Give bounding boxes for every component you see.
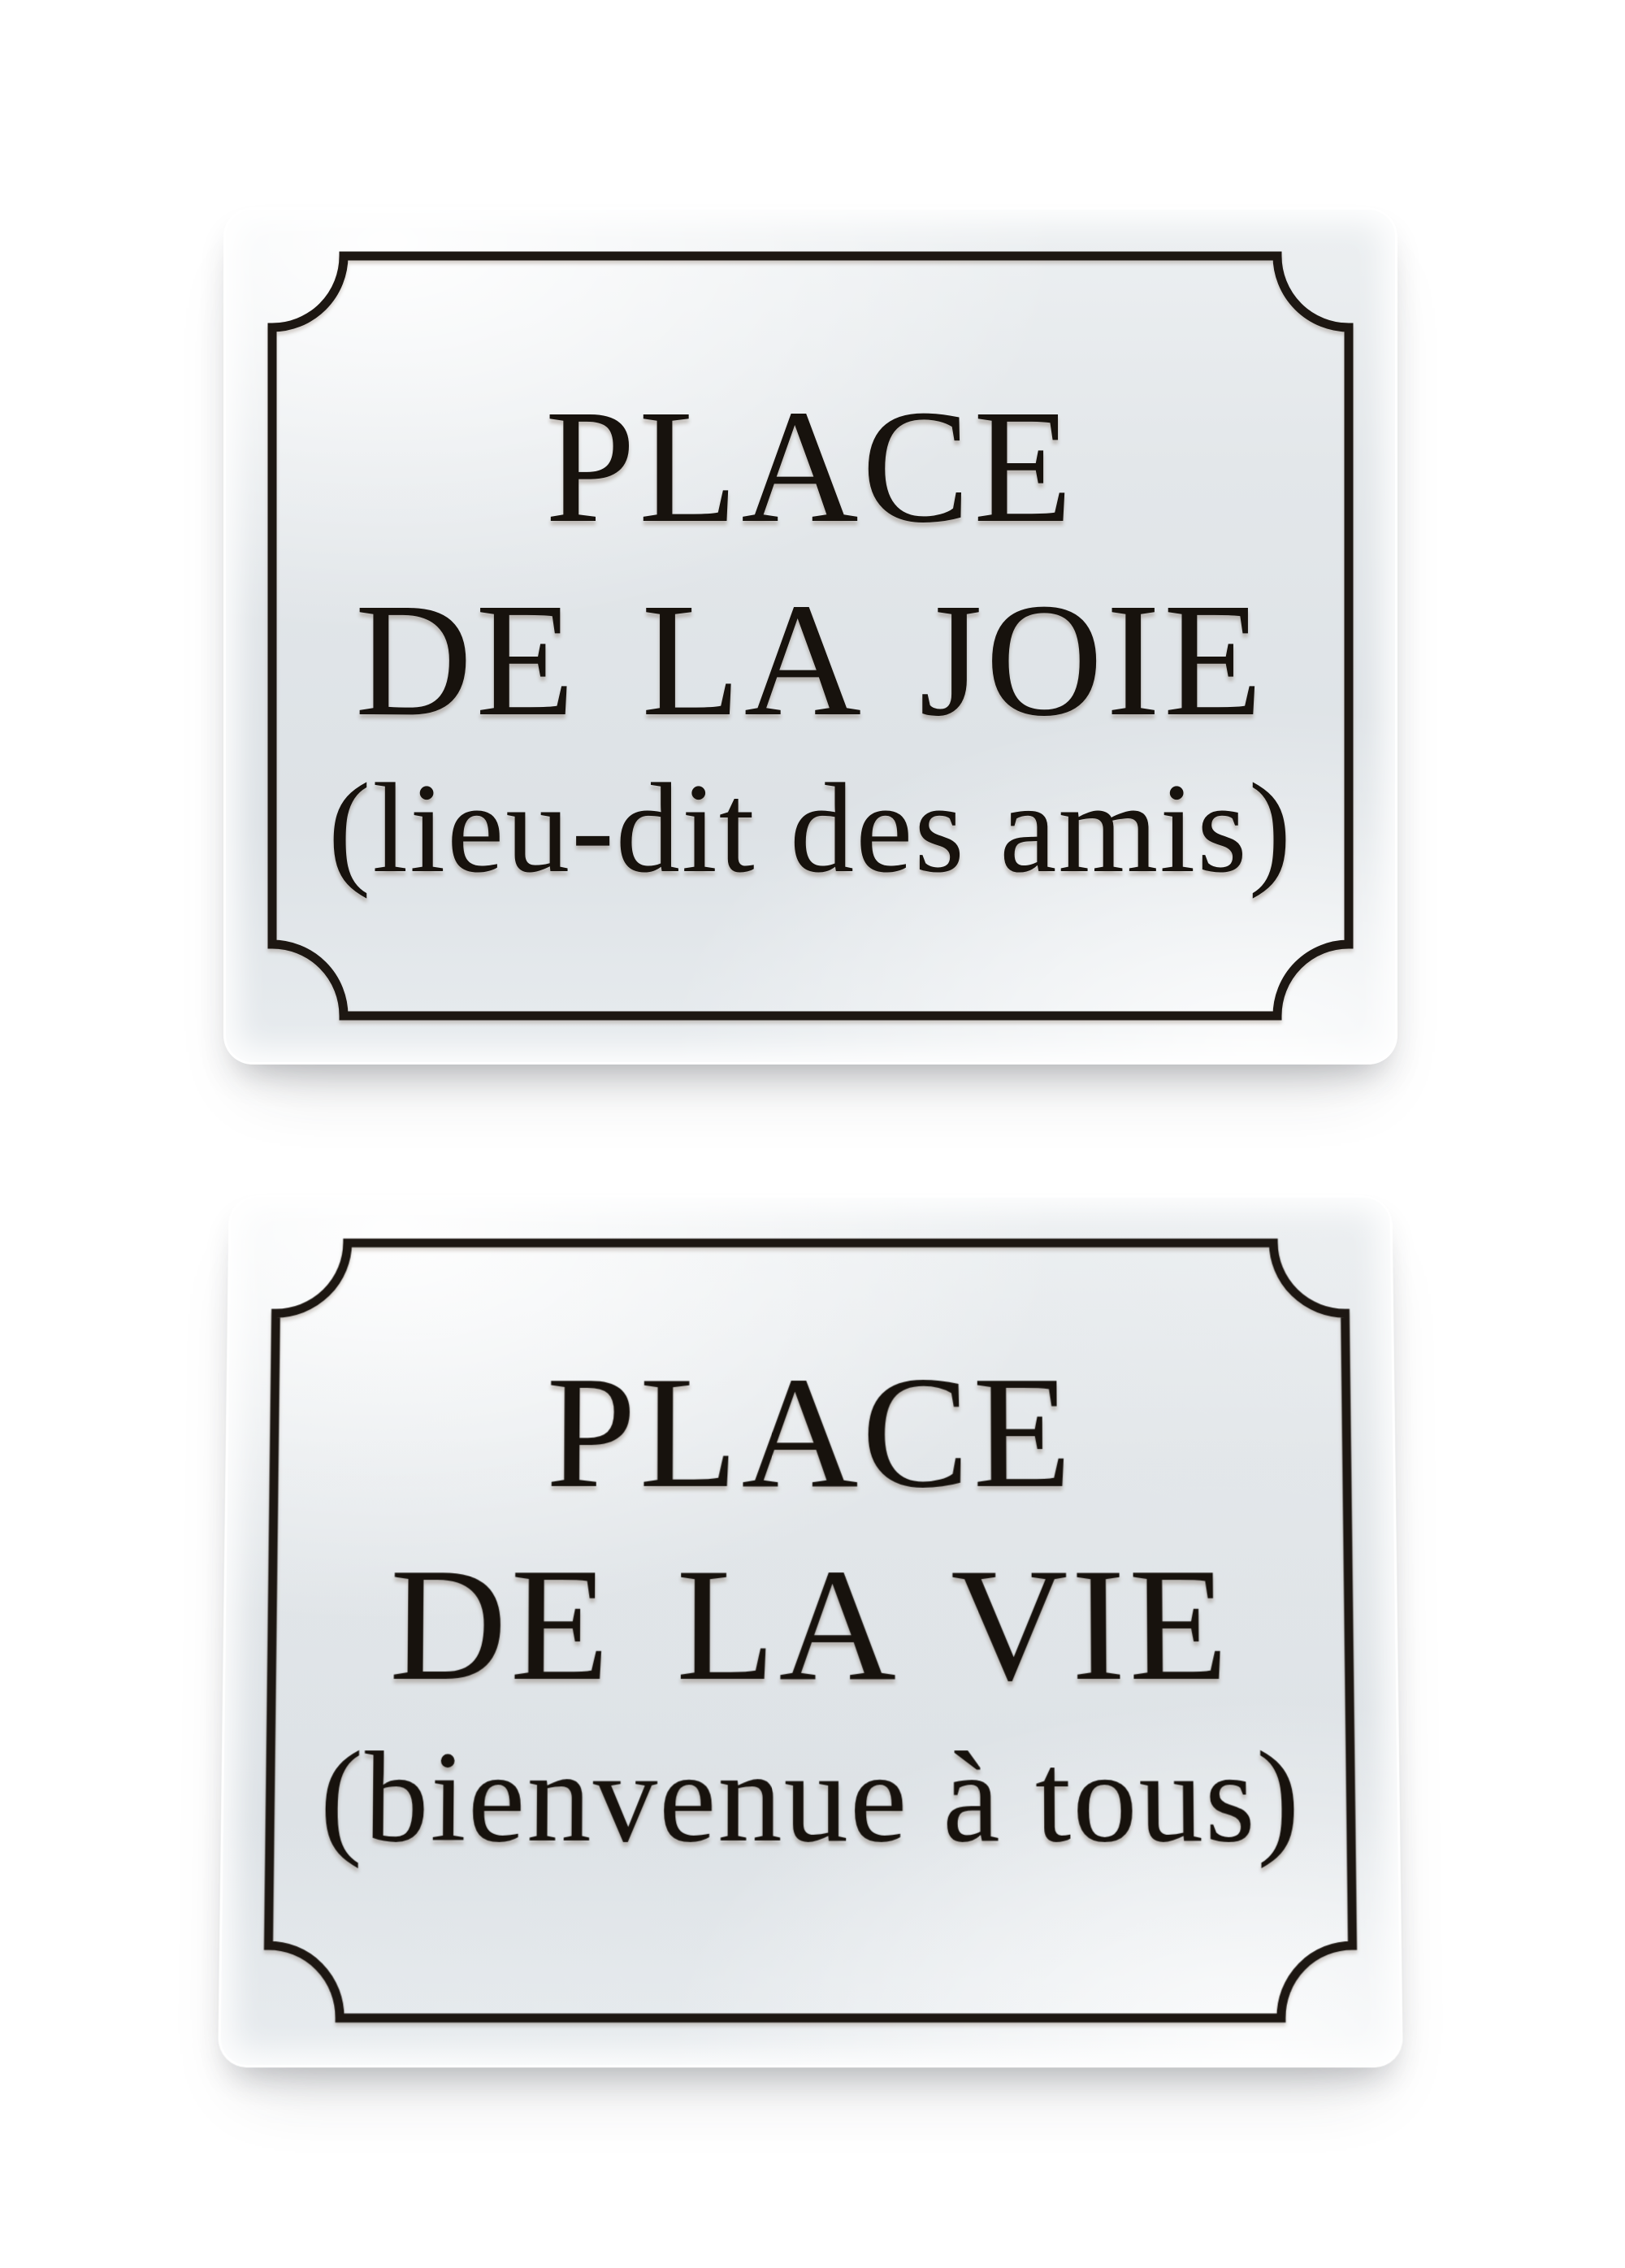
plaque-line-primary: PLACE: [223, 386, 1397, 549]
enamel-plaque-place-de-la-vie: PLACE DE LA VIE (bienvenue à tous): [218, 1195, 1403, 2068]
plaque-line-secondary: DE LA JOIE: [223, 579, 1397, 742]
plaque-line-secondary: DE LA VIE: [223, 1544, 1398, 1706]
enamel-plaque-place-de-la-joie: PLACE DE LA JOIE (lieu-dit des amis): [223, 207, 1397, 1065]
plaque-subtitle: (bienvenue à tous): [220, 1733, 1400, 1863]
plaque-line-primary: PLACE: [225, 1352, 1396, 1513]
photo-canvas: PLACE DE LA JOIE (lieu-dit des amis) PLA…: [0, 0, 1625, 2268]
plaque-subtitle: (lieu-dit des amis): [223, 765, 1397, 893]
